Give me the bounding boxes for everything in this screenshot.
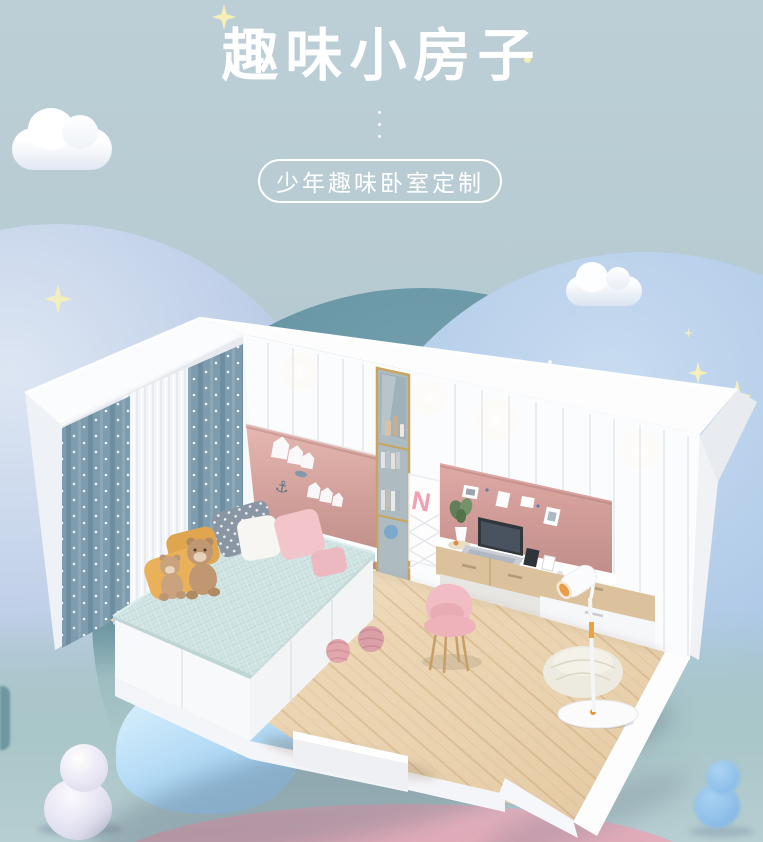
page-title: 趣味小房子 (0, 10, 763, 92)
subtitle-text: 少年趣味卧室定制 (276, 164, 484, 198)
subtitle-pill: 少年趣味卧室定制 (258, 159, 502, 203)
knot-ball (326, 639, 350, 663)
photo-frame (542, 555, 556, 571)
lamp-base (558, 700, 638, 728)
divider-dot (378, 111, 381, 114)
curtain-left-panel (62, 396, 130, 648)
cubby-shelf: N (409, 474, 440, 568)
divider-dot (378, 135, 381, 138)
divider-dot (378, 123, 381, 126)
display-column (377, 368, 409, 597)
chair-seat (424, 615, 476, 637)
bedroom-diorama: ⚓ (0, 0, 763, 842)
knot-ball (358, 626, 384, 652)
promo-banner: ⚓ (0, 0, 763, 842)
blue-toy (384, 525, 398, 539)
